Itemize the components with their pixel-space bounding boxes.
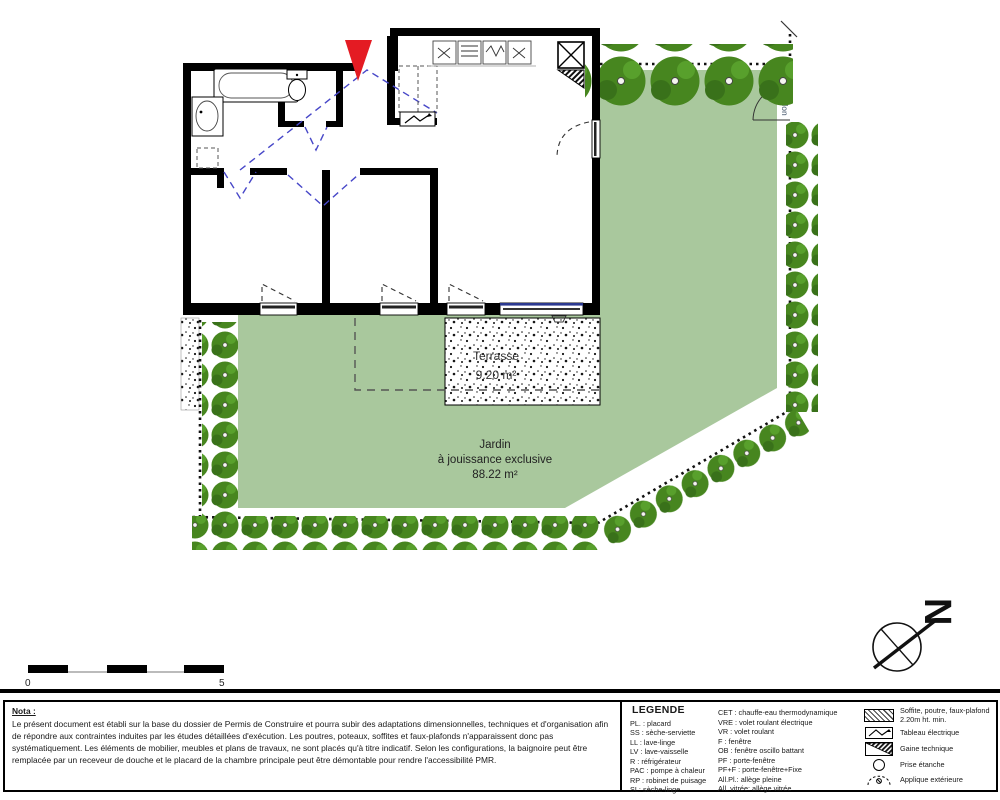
legend-symbol-item: Soffite, poutre, faux-plafond 2.20m ht. … — [864, 707, 992, 724]
legend-column-abbreviations: LEGENDE PL. : placard SS : sèche-serviet… — [630, 704, 706, 795]
washbasin — [192, 97, 223, 136]
hedge-bottom — [192, 516, 600, 550]
floor-plan-drawing: Portillon — [0, 0, 1000, 690]
legend-box: LEGENDE PL. : placard SS : sèche-serviet… — [620, 700, 998, 792]
exterior-light-icon — [864, 774, 894, 787]
electrical-panel-icon — [864, 727, 894, 739]
legend-item: All.Pl.: allège pleine — [718, 775, 837, 785]
bedroom1-window — [260, 303, 297, 315]
legend-symbol-item: Applique extérieure — [864, 774, 992, 787]
legend-column-openings: CET : chauffe-eau thermodynamique VRE : … — [718, 708, 837, 794]
hedge-right — [786, 122, 818, 412]
legend-item: PAC : pompe à chaleur — [630, 766, 706, 776]
nota-body: Le présent document est établi sur la ba… — [12, 718, 613, 766]
window-swing-marks — [262, 122, 589, 301]
legend-item: VRE : volet roulant électrique — [718, 718, 837, 728]
entrance-arrow — [345, 40, 372, 81]
soffit-hatch-icon — [864, 709, 894, 722]
legend-item: OB : fenêtre oscillo battant — [718, 746, 837, 756]
legend-symbol-item: Gaine technique — [864, 742, 992, 756]
legend-item: VR : volet roulant — [718, 727, 837, 737]
north-label: N — [916, 598, 958, 625]
scale-end: 5 — [219, 678, 225, 689]
concrete-path — [181, 318, 199, 410]
legend-item: R : réfrigérateur — [630, 757, 706, 767]
garden-area-value: 88.22 m² — [472, 469, 518, 481]
terrace-area — [445, 318, 600, 405]
legend-symbol-item: Tableau électrique — [864, 727, 992, 739]
garden-label-line2: à jouissance exclusive — [438, 454, 552, 466]
legend-item: LL : lave-linge — [630, 738, 706, 748]
terrace-label: Terrasse — [473, 349, 519, 363]
scale-bar: 0 5 — [25, 665, 225, 689]
bathtub — [214, 69, 298, 102]
nota-box: Nota : Le présent document est établi su… — [3, 700, 622, 792]
legend-item: SL: sèche-linge — [630, 785, 706, 795]
technical-duct — [558, 42, 584, 88]
scale-start: 0 — [25, 678, 31, 689]
terrace-area: 9.20 m² — [476, 368, 517, 382]
dishwasher — [458, 41, 481, 64]
north-compass: N — [873, 598, 958, 671]
legend-title: LEGENDE — [632, 706, 706, 716]
legend-item: PF : porte-fenêtre — [718, 756, 837, 766]
legend-column-symbols: Soffite, poutre, faux-plafond 2.20m ht. … — [864, 707, 992, 790]
waterproof-socket-icon — [864, 759, 894, 771]
garden-label-line1: Jardin — [479, 439, 510, 451]
legend-item: PL. : placard — [630, 719, 706, 729]
legend-item: RP : robinet de puisage — [630, 776, 706, 786]
kitchen-fixtures — [400, 41, 584, 126]
technical-duct-icon — [864, 742, 894, 756]
right-wall-window — [592, 120, 600, 158]
legend-item: SS : sèche-serviette — [630, 728, 706, 738]
legend-item: F : fenêtre — [718, 737, 837, 747]
legend-item: All. vitrée: allège vitrée — [718, 784, 837, 794]
nota-title: Nota : — [12, 705, 613, 717]
footer-separator — [0, 689, 1000, 693]
legend-item: CET : chauffe-eau thermodynamique — [718, 708, 837, 718]
toilet — [287, 70, 307, 101]
legend-item: PF+F : porte-fenêtre+Fixe — [718, 765, 837, 775]
living-window — [447, 303, 485, 315]
terrace-sliding-door — [500, 303, 583, 315]
bedroom2-window — [380, 303, 418, 315]
hedge-top — [585, 44, 793, 108]
legend-item: LV : lave-vaisselle — [630, 747, 706, 757]
electrical-panel — [400, 112, 435, 126]
hedge-left — [202, 322, 238, 518]
legend-symbol-item: Prise étanche — [864, 759, 992, 771]
